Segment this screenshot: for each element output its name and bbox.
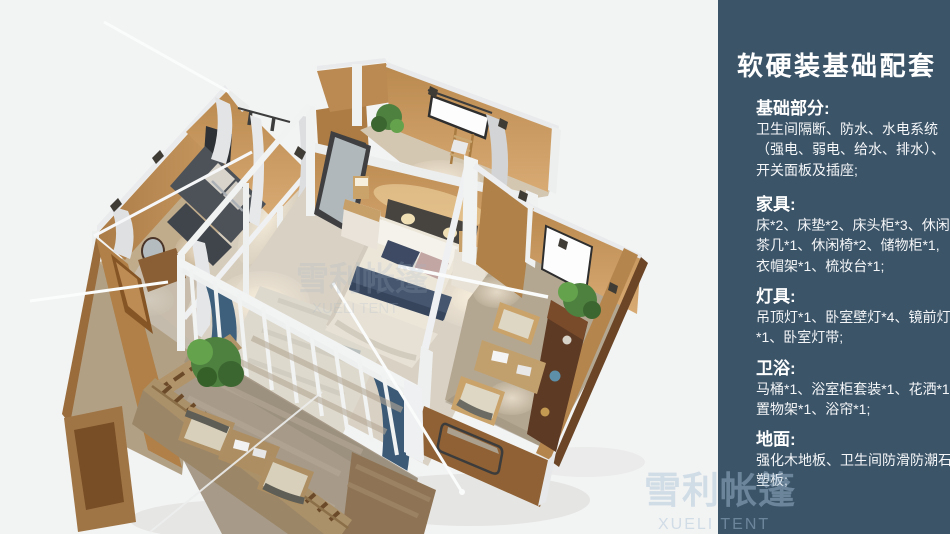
svg-text:XUELI TENT: XUELI TENT <box>312 300 398 317</box>
svg-text:雪利帐篷: 雪利帐篷 <box>296 260 428 297</box>
